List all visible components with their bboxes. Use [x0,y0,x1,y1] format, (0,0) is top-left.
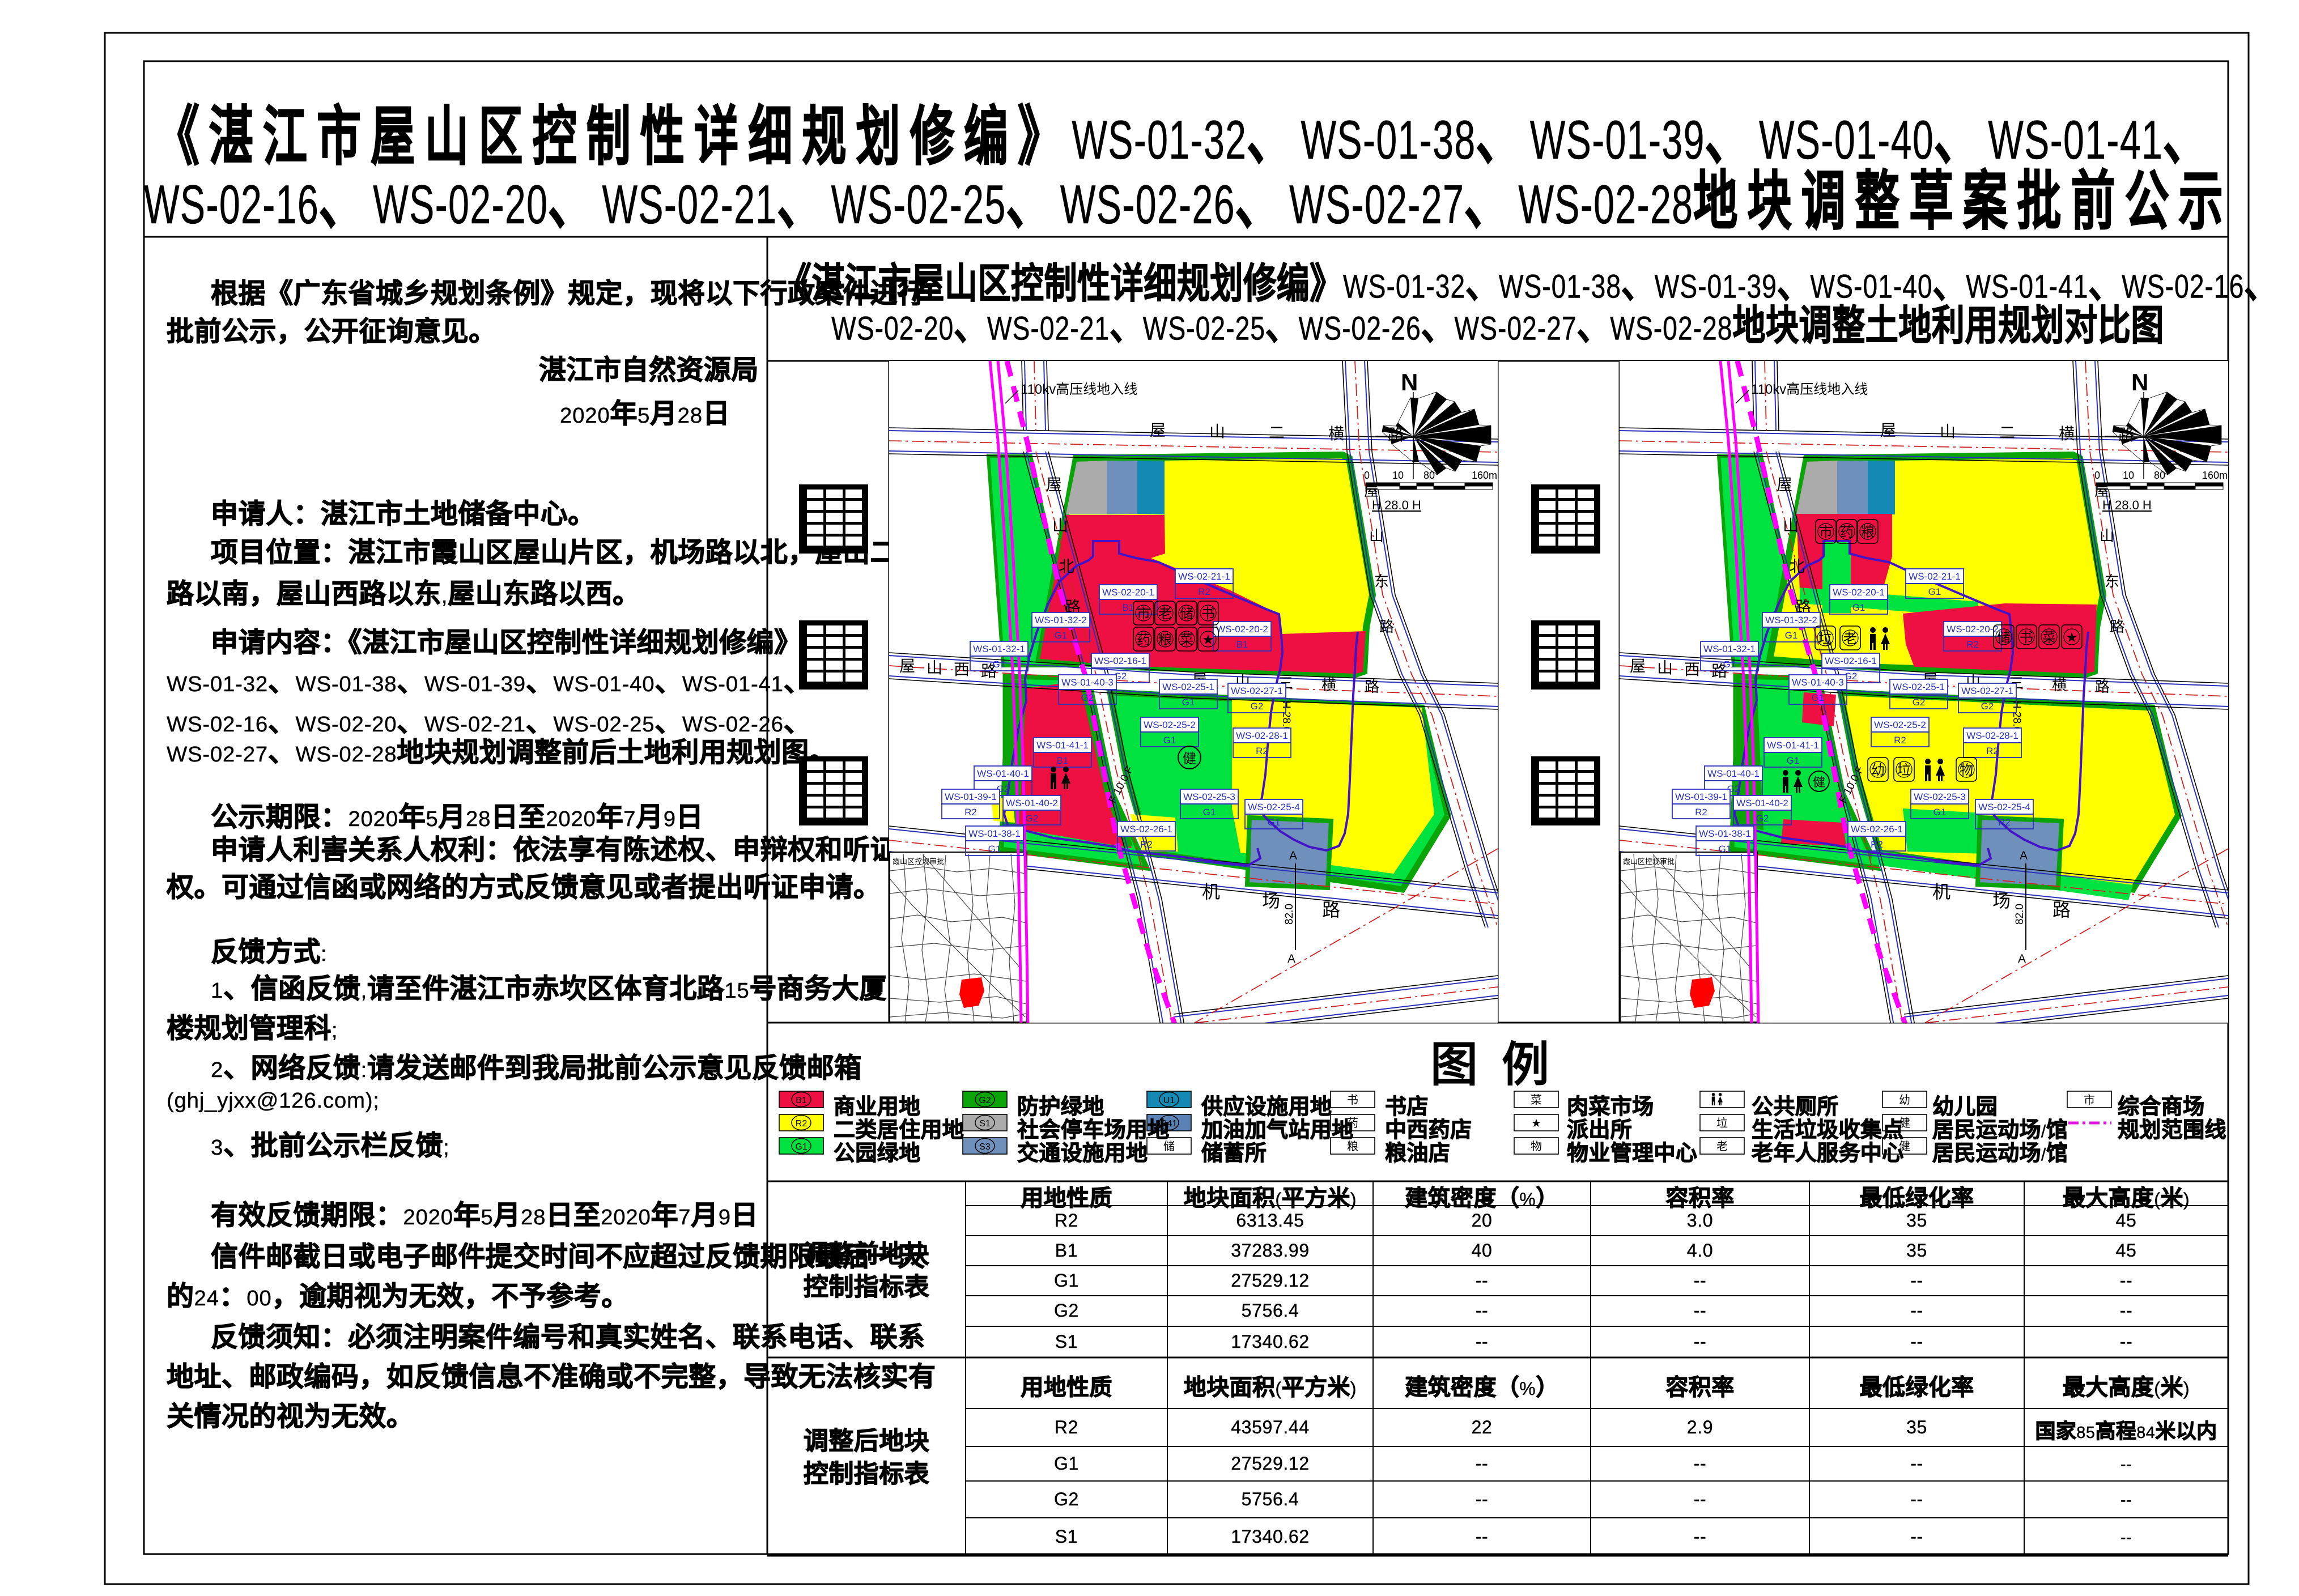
svg-text:G2: G2 [979,1096,991,1105]
svg-text:物: 物 [1531,1140,1542,1153]
svg-text:★: ★ [1531,1117,1541,1130]
svg-text:老: 老 [1716,1140,1728,1153]
svg-text:R2: R2 [796,1119,808,1129]
svg-text:S1: S1 [979,1119,991,1129]
svg-text:U1: U1 [1163,1096,1175,1105]
svg-text:B1: B1 [796,1096,807,1105]
svg-text:S3: S3 [979,1142,991,1152]
svg-text:幼: 幼 [1899,1093,1910,1106]
svg-text:市: 市 [2084,1093,2095,1106]
svg-text:菜: 菜 [1531,1093,1542,1106]
svg-text:G1: G1 [795,1142,807,1152]
svg-text:垃: 垃 [1716,1117,1728,1130]
svg-text:书: 书 [1347,1093,1358,1106]
